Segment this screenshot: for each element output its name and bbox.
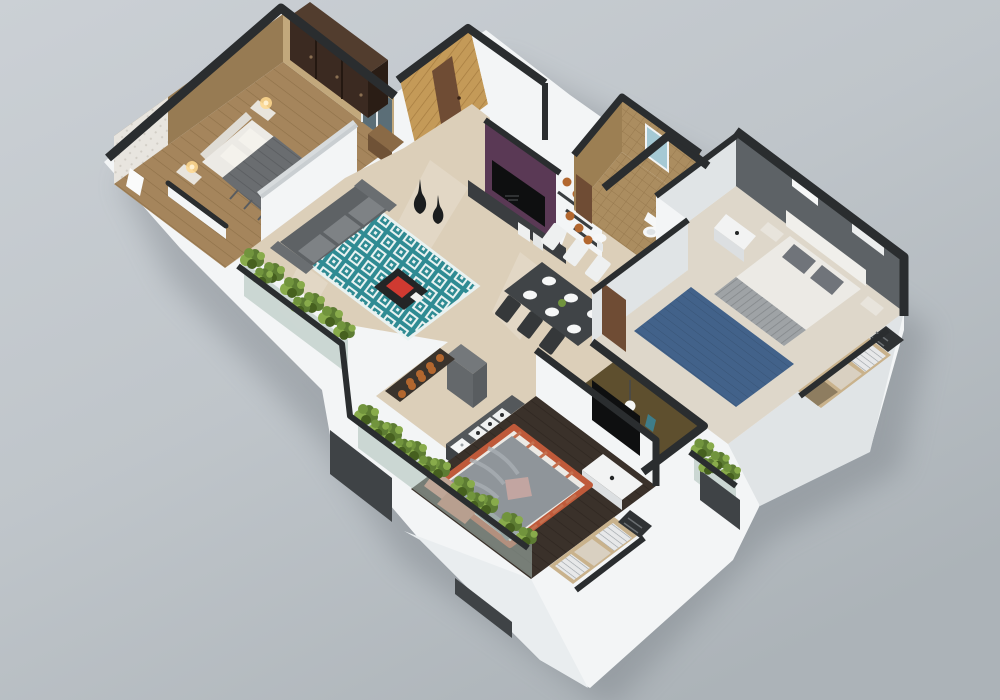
pink-folded-cloth [505,477,532,500]
floor-plan-render [0,0,1000,700]
table-centerpiece [558,299,566,307]
floor-plan-svg [0,0,1000,700]
